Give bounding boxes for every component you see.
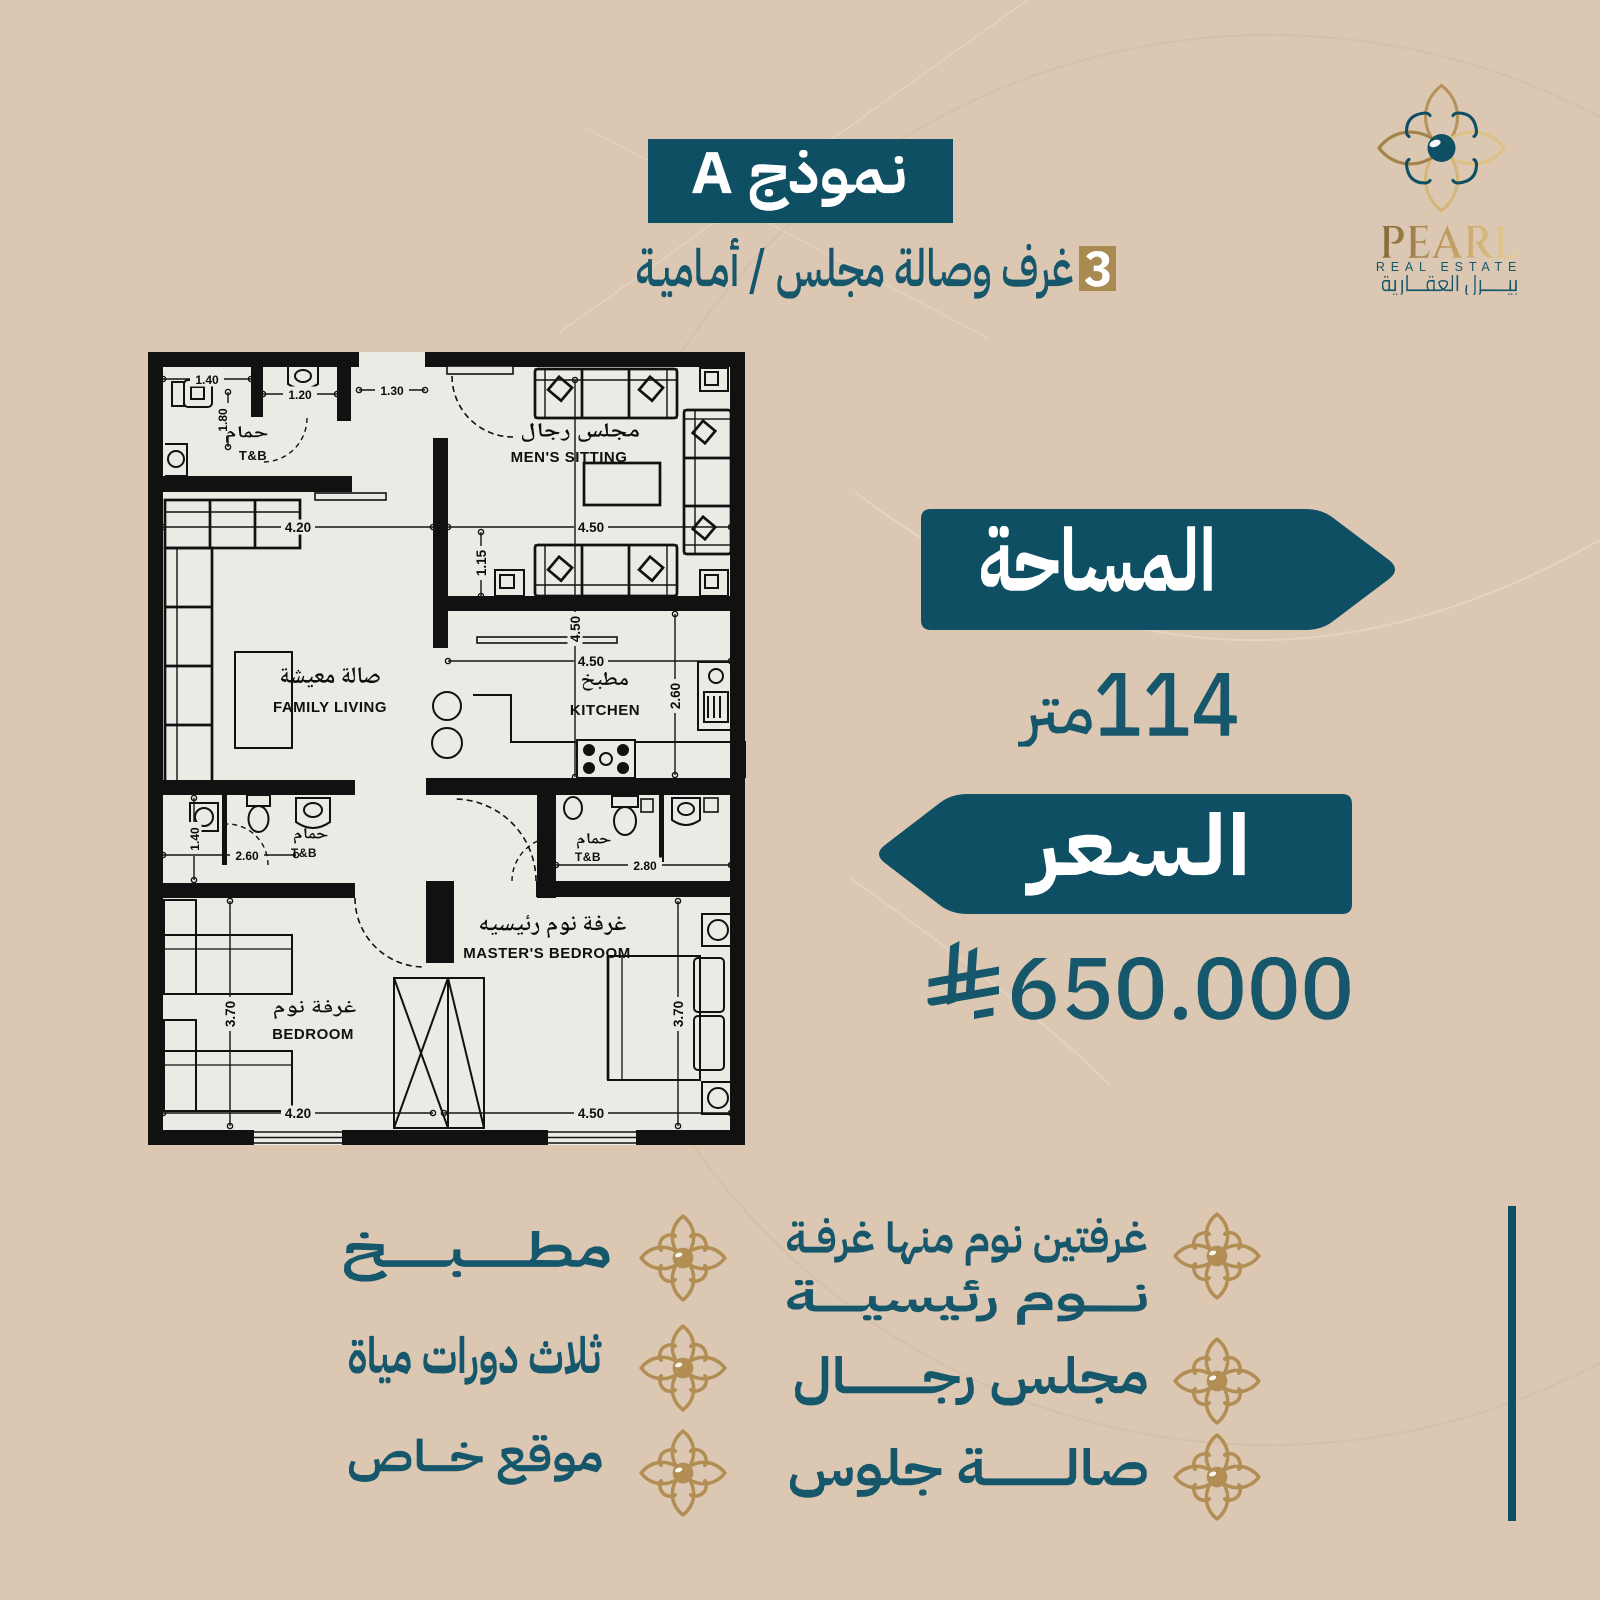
svg-text:FAMILY LIVING: FAMILY LIVING [273, 699, 387, 716]
svg-text:T&B: T&B [239, 448, 267, 463]
svg-text:4.50: 4.50 [578, 1106, 604, 1121]
svg-text:T&B: T&B [291, 846, 317, 860]
svg-text:1.30: 1.30 [380, 384, 404, 398]
svg-text:4.50: 4.50 [578, 654, 604, 669]
svg-text:2.60: 2.60 [668, 683, 683, 709]
svg-text:BEDROOM: BEDROOM [272, 1026, 354, 1043]
svg-text:2.80: 2.80 [633, 859, 657, 873]
svg-text:T&B: T&B [575, 850, 601, 864]
svg-text:1.20: 1.20 [288, 388, 312, 402]
svg-text:REAL ESTATE: REAL ESTATE [1376, 260, 1522, 274]
svg-text:1.40: 1.40 [188, 827, 202, 851]
svg-text:4.50: 4.50 [568, 616, 583, 642]
svg-text:1.15: 1.15 [474, 549, 489, 576]
svg-text:KITCHEN: KITCHEN [570, 702, 640, 719]
svg-text:4.20: 4.20 [285, 520, 311, 535]
svg-text:2.60: 2.60 [235, 849, 259, 863]
svg-text:4.50: 4.50 [578, 520, 604, 535]
svg-text:3.70: 3.70 [671, 1001, 686, 1027]
svg-text:MEN'S SITTING: MEN'S SITTING [511, 449, 628, 466]
svg-text:1.40: 1.40 [195, 373, 219, 387]
svg-text:3.70: 3.70 [223, 1001, 238, 1027]
svg-text:MASTER'S BEDROOM: MASTER'S BEDROOM [463, 945, 630, 962]
svg-text:1.80: 1.80 [216, 408, 230, 432]
svg-text:4.20: 4.20 [285, 1106, 311, 1121]
